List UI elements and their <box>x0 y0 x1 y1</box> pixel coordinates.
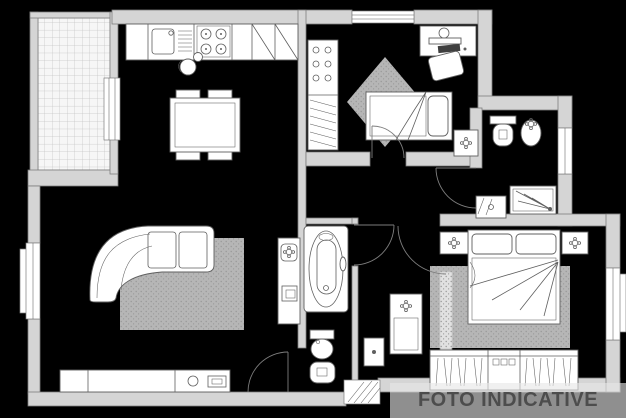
master-bedroom <box>430 230 588 390</box>
bathtub-bathroom <box>278 226 348 383</box>
watermark-band: FOTO INDICATIVE <box>390 383 626 418</box>
nightstand-right <box>562 232 588 254</box>
window-top <box>352 11 414 23</box>
desk-with-computer <box>420 26 476 56</box>
window-right-master <box>606 268 626 340</box>
shower <box>510 186 556 214</box>
kitchen-counter <box>126 24 298 75</box>
floor-plan-stage: FOTO INDICATIVE <box>0 0 626 418</box>
nightstand <box>454 130 478 156</box>
bidet <box>521 118 541 146</box>
dining-table <box>170 90 240 160</box>
small-bedroom <box>308 26 478 156</box>
wardrobe-closet <box>308 40 338 150</box>
tiled-floor <box>38 18 110 170</box>
door-shower-bathroom <box>436 168 476 208</box>
bidet <box>310 362 335 383</box>
hall-cabinet <box>390 294 422 354</box>
washbasin <box>476 196 506 218</box>
window-right-bathroom <box>558 128 572 174</box>
balcony-door <box>104 78 120 140</box>
entrance-threshold <box>344 380 380 404</box>
tv-sideboard <box>60 370 230 392</box>
hallway <box>364 294 422 366</box>
shower-bathroom <box>476 116 556 218</box>
bathtub <box>304 226 348 312</box>
door-living <box>248 352 288 392</box>
toilet <box>310 330 334 359</box>
watermark-text: FOTO INDICATIVE <box>418 389 598 412</box>
double-bed <box>468 230 560 324</box>
toilet <box>490 116 516 146</box>
single-bed <box>366 92 452 140</box>
floor-plan-drawing <box>0 0 626 418</box>
window-left <box>20 243 40 319</box>
washbasin-counter <box>278 238 300 324</box>
radiator <box>364 338 384 366</box>
terrace <box>38 18 110 170</box>
door-bathtub-bathroom <box>354 225 394 265</box>
nightstand-left <box>440 232 468 254</box>
